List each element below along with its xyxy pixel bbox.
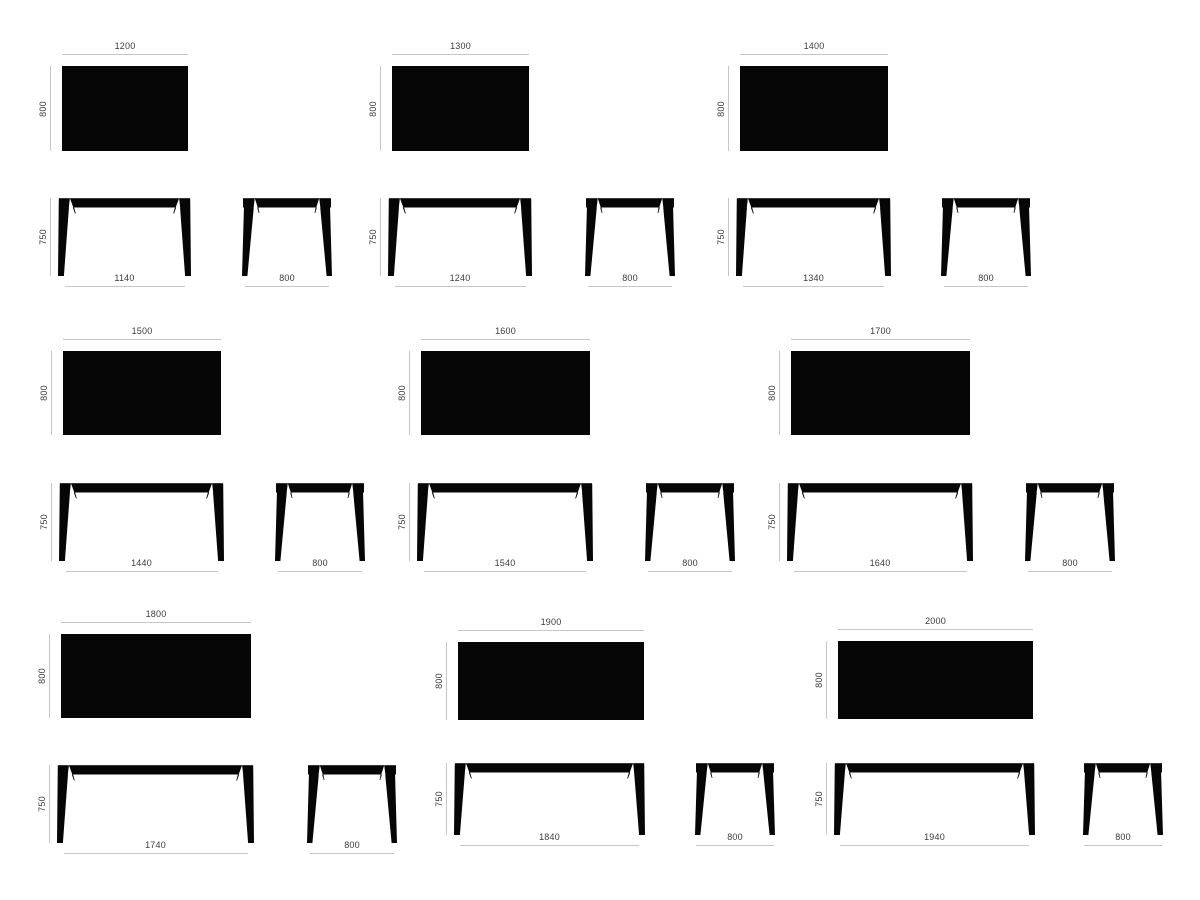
dim-line-top-width bbox=[838, 629, 1033, 630]
dim-depth-label: 800 bbox=[396, 373, 408, 413]
table-top-view bbox=[421, 351, 590, 435]
dim-side-width-label: 800 bbox=[278, 558, 362, 569]
dim-feet-label: 1840 bbox=[460, 832, 639, 843]
table-top-view bbox=[791, 351, 970, 435]
dim-depth-label: 800 bbox=[813, 660, 825, 700]
dim-feet-label: 1640 bbox=[794, 558, 967, 569]
dim-width-label: 1300 bbox=[392, 41, 529, 52]
table-front-view bbox=[388, 197, 532, 276]
dim-line-depth bbox=[446, 642, 447, 720]
dim-line-side-span bbox=[1084, 845, 1162, 846]
table-side-view bbox=[695, 762, 775, 835]
dim-side-width-label: 800 bbox=[310, 840, 394, 851]
dim-line-side-span bbox=[696, 845, 774, 846]
dim-feet-label: 1940 bbox=[840, 832, 1029, 843]
dim-height-label: 750 bbox=[813, 779, 825, 819]
dim-line-top-width bbox=[791, 339, 970, 340]
table-top-view bbox=[458, 642, 644, 720]
dim-line-side-span bbox=[245, 286, 329, 287]
dim-width-label: 1200 bbox=[62, 41, 188, 52]
dim-line-height bbox=[51, 483, 52, 561]
dim-line-feet-span bbox=[424, 571, 586, 572]
table-front-view bbox=[454, 762, 645, 835]
dim-depth-label: 800 bbox=[433, 661, 445, 701]
dim-line-height bbox=[728, 198, 729, 276]
dim-line-feet-span bbox=[66, 571, 218, 572]
dim-feet-label: 1440 bbox=[66, 558, 218, 569]
dim-height-label: 750 bbox=[715, 217, 727, 257]
table-front-view bbox=[736, 197, 891, 276]
dim-line-depth bbox=[51, 351, 52, 435]
dim-line-depth bbox=[50, 66, 51, 151]
dim-width-label: 1900 bbox=[458, 617, 644, 628]
dim-side-width-label: 800 bbox=[588, 273, 672, 284]
table-side-view bbox=[585, 197, 675, 276]
dim-line-height bbox=[779, 483, 780, 561]
dim-line-top-width bbox=[458, 630, 644, 631]
dim-line-top-width bbox=[740, 54, 888, 55]
table-top-view bbox=[838, 641, 1033, 719]
dim-line-height bbox=[50, 198, 51, 276]
dim-feet-label: 1240 bbox=[395, 273, 526, 284]
dim-line-top-width bbox=[392, 54, 529, 55]
table-side-view bbox=[1025, 482, 1115, 561]
dim-side-width-label: 800 bbox=[696, 832, 774, 843]
dim-line-depth bbox=[49, 634, 50, 718]
dim-line-depth bbox=[409, 351, 410, 435]
dim-width-label: 2000 bbox=[838, 616, 1033, 627]
dim-width-label: 1700 bbox=[791, 326, 970, 337]
dim-height-label: 750 bbox=[37, 217, 49, 257]
dim-width-label: 1600 bbox=[421, 326, 590, 337]
dim-line-feet-span bbox=[65, 286, 185, 287]
dim-width-label: 1800 bbox=[61, 609, 251, 620]
dim-line-feet-span bbox=[395, 286, 526, 287]
dim-line-side-span bbox=[588, 286, 672, 287]
table-front-view bbox=[59, 482, 224, 561]
table-front-view bbox=[57, 764, 254, 843]
dim-line-top-width bbox=[62, 54, 188, 55]
dim-line-side-span bbox=[278, 571, 362, 572]
dim-line-height bbox=[380, 198, 381, 276]
dim-line-depth bbox=[380, 66, 381, 151]
table-side-view bbox=[307, 764, 397, 843]
table-front-view bbox=[787, 482, 973, 561]
dimension-sheet: 1200 800 750 1140 800 1300 800 750 bbox=[0, 0, 1200, 900]
dim-line-height bbox=[446, 763, 447, 835]
dim-line-depth bbox=[826, 641, 827, 719]
dim-side-width-label: 800 bbox=[245, 273, 329, 284]
table-front-view bbox=[58, 197, 191, 276]
table-front-view bbox=[417, 482, 593, 561]
dim-side-width-label: 800 bbox=[648, 558, 732, 569]
dim-line-depth bbox=[728, 66, 729, 151]
table-top-view bbox=[392, 66, 529, 151]
table-side-view bbox=[941, 197, 1031, 276]
table-front-view bbox=[834, 762, 1035, 835]
table-top-view bbox=[61, 634, 251, 718]
dim-width-label: 1400 bbox=[740, 41, 888, 52]
dim-width-label: 1500 bbox=[63, 326, 221, 337]
dim-side-width-label: 800 bbox=[1028, 558, 1112, 569]
dim-line-side-span bbox=[310, 853, 394, 854]
dim-height-label: 750 bbox=[396, 502, 408, 542]
dim-depth-label: 800 bbox=[38, 373, 50, 413]
dim-feet-label: 1740 bbox=[64, 840, 248, 851]
dim-line-height bbox=[49, 765, 50, 843]
dim-side-width-label: 800 bbox=[1084, 832, 1162, 843]
dim-line-feet-span bbox=[743, 286, 884, 287]
dim-depth-label: 800 bbox=[715, 89, 727, 129]
dim-height-label: 750 bbox=[433, 779, 445, 819]
dim-line-top-width bbox=[61, 622, 251, 623]
dim-line-feet-span bbox=[460, 845, 639, 846]
dim-line-feet-span bbox=[64, 853, 248, 854]
dim-depth-label: 800 bbox=[37, 89, 49, 129]
dim-height-label: 750 bbox=[38, 502, 50, 542]
dim-height-label: 750 bbox=[36, 784, 48, 824]
table-side-view bbox=[645, 482, 735, 561]
table-side-view bbox=[1083, 762, 1163, 835]
table-top-view bbox=[62, 66, 188, 151]
dim-line-depth bbox=[779, 351, 780, 435]
dim-depth-label: 800 bbox=[36, 656, 48, 696]
dim-depth-label: 800 bbox=[766, 373, 778, 413]
dim-line-feet-span bbox=[794, 571, 967, 572]
dim-feet-label: 1140 bbox=[65, 273, 185, 284]
table-side-view bbox=[242, 197, 332, 276]
dim-line-top-width bbox=[63, 339, 221, 340]
table-top-view bbox=[63, 351, 221, 435]
dim-height-label: 750 bbox=[766, 502, 778, 542]
table-side-view bbox=[275, 482, 365, 561]
dim-line-side-span bbox=[1028, 571, 1112, 572]
dim-feet-label: 1340 bbox=[743, 273, 884, 284]
dim-line-height bbox=[826, 763, 827, 835]
dim-feet-label: 1540 bbox=[424, 558, 586, 569]
dim-height-label: 750 bbox=[367, 217, 379, 257]
dim-line-top-width bbox=[421, 339, 590, 340]
dim-line-side-span bbox=[944, 286, 1028, 287]
dim-side-width-label: 800 bbox=[944, 273, 1028, 284]
table-top-view bbox=[740, 66, 888, 151]
dim-line-side-span bbox=[648, 571, 732, 572]
dim-line-height bbox=[409, 483, 410, 561]
dim-line-feet-span bbox=[840, 845, 1029, 846]
dim-depth-label: 800 bbox=[367, 89, 379, 129]
